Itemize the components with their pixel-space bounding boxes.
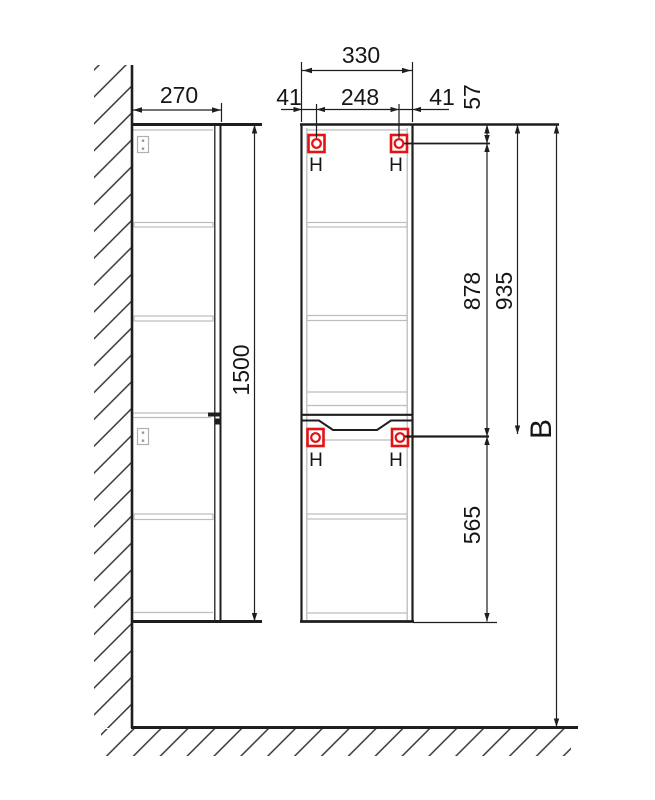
mount-label-mid-left: H xyxy=(309,450,323,471)
mount-hole-mid-right xyxy=(396,433,405,442)
dim-mid-hole-to-bottom-label: 565 xyxy=(459,506,485,544)
dim-upper-to-mid-hole-label: 878 xyxy=(459,272,485,310)
dimension-arrows xyxy=(133,68,559,727)
dim-side-depth-label: 270 xyxy=(160,82,198,108)
hinge-marker-top xyxy=(138,137,149,153)
side-shelf-3 xyxy=(134,514,213,520)
side-shelf-2 xyxy=(134,316,213,321)
dimension-lines xyxy=(132,62,557,727)
front-shelf-2 xyxy=(307,316,407,321)
dim-hole-offset-right-label: 41 xyxy=(429,84,455,110)
mount-label-mid-right: H xyxy=(389,450,403,471)
hinge-marker-bottom xyxy=(138,429,149,445)
mount-hole-top-right xyxy=(395,139,404,148)
floor-hatch xyxy=(101,729,571,756)
technical-drawing: 270 1500 330 41 248 41 57 878 935 565 B … xyxy=(0,0,655,800)
cabinet-installation-drawing: 270 1500 330 41 248 41 57 878 935 565 B … xyxy=(0,0,655,800)
wall-section xyxy=(88,60,132,730)
dim-overall-height-label: B xyxy=(525,419,558,439)
mount-label-top-right: H xyxy=(389,155,403,176)
mount-hole-mid-left xyxy=(311,433,320,442)
cabinet-front-view xyxy=(300,104,559,622)
front-shelf-3 xyxy=(307,514,407,519)
dim-hole-offset-left-label: 41 xyxy=(276,84,302,110)
mount-hole-top-left xyxy=(312,139,321,148)
dim-top-to-mid-hole-label: 935 xyxy=(491,272,517,310)
dim-top-to-hole-label: 57 xyxy=(459,84,485,110)
floor-section xyxy=(101,728,578,757)
dim-hole-spacing-label: 248 xyxy=(341,84,379,110)
mount-label-top-left: H xyxy=(309,155,323,176)
front-shelf-1 xyxy=(307,223,407,228)
side-door-gap xyxy=(208,413,222,417)
wall-hatch xyxy=(92,65,132,728)
dim-height-label: 1500 xyxy=(228,344,254,395)
side-shelf-1 xyxy=(134,223,213,228)
dim-front-width-label: 330 xyxy=(342,42,380,68)
side-handle-profile xyxy=(215,419,222,425)
